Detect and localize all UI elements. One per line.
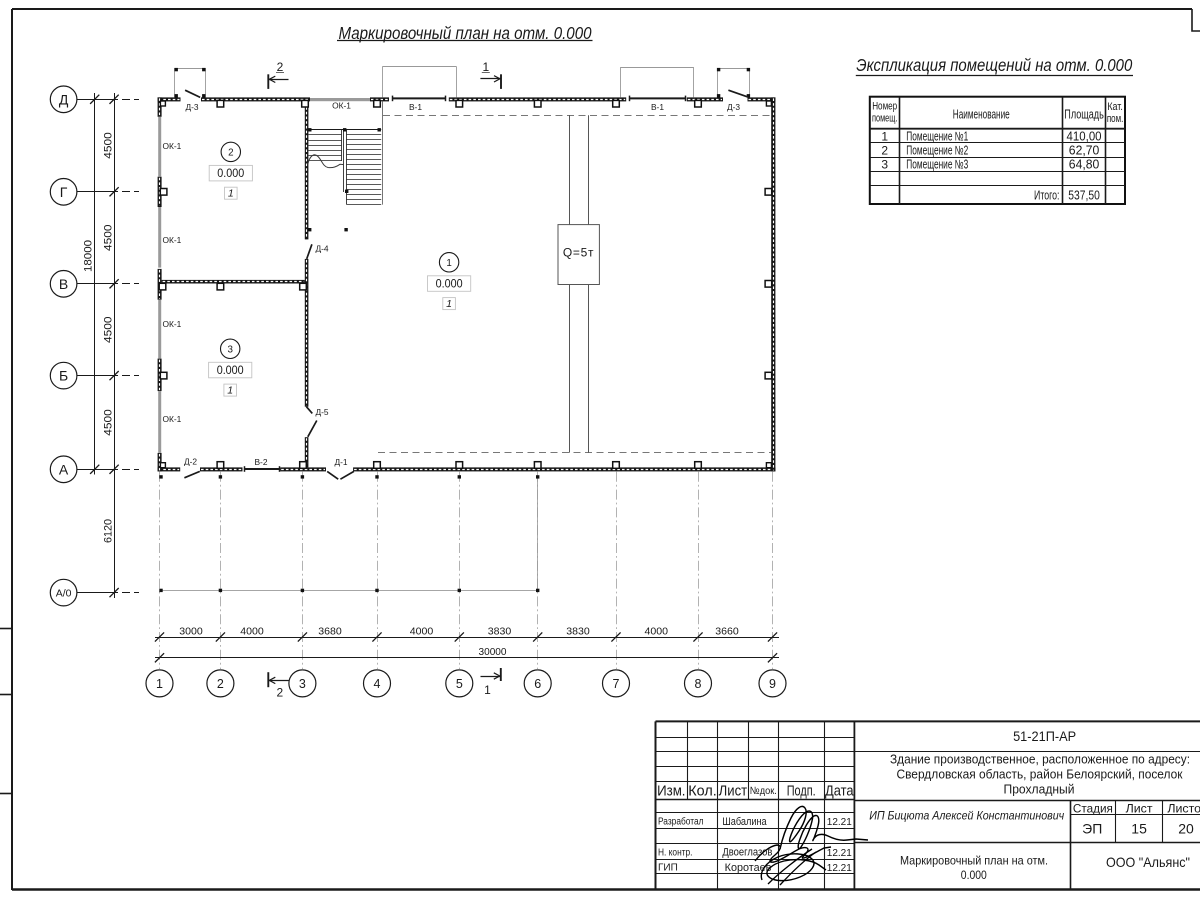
svg-text:Д-1: Д-1: [334, 457, 347, 467]
svg-text:3: 3: [881, 157, 888, 171]
svg-text:64,80: 64,80: [1069, 157, 1100, 171]
svg-text:ОК-1: ОК-1: [163, 141, 182, 151]
svg-text:62,70: 62,70: [1069, 143, 1100, 157]
svg-text:ОК-1: ОК-1: [332, 100, 351, 110]
svg-text:3680: 3680: [318, 626, 342, 637]
svg-text:Д-3: Д-3: [185, 102, 198, 112]
svg-text:1: 1: [482, 60, 489, 74]
svg-text:3660: 3660: [715, 626, 739, 637]
svg-text:А: А: [59, 461, 69, 477]
svg-text:2: 2: [217, 677, 224, 691]
svg-text:12.21: 12.21: [827, 817, 852, 828]
svg-text:Наименование: Наименование: [953, 107, 1010, 121]
svg-text:Б: Б: [59, 368, 68, 384]
svg-text:Q=5т: Q=5т: [563, 245, 594, 259]
svg-text:Д-3: Д-3: [727, 102, 740, 112]
svg-text:Прохладный: Прохладный: [1004, 782, 1075, 797]
svg-text:Маркировочный план на отм.: Маркировочный план на отм.: [900, 855, 1048, 868]
svg-text:Итого:: Итого:: [1034, 187, 1060, 202]
svg-text:Площадь: Площадь: [1064, 107, 1104, 121]
svg-text:12.21: 12.21: [827, 848, 852, 859]
svg-text:В-1: В-1: [409, 102, 422, 112]
svg-text:4: 4: [374, 677, 381, 691]
svg-text:2: 2: [277, 60, 284, 74]
svg-text:Шабалина: Шабалина: [722, 816, 767, 828]
svg-text:1: 1: [881, 129, 888, 143]
svg-text:Разработал: Разработал: [658, 815, 704, 827]
svg-text:2: 2: [228, 148, 233, 159]
svg-text:В: В: [59, 276, 68, 292]
svg-text:Дата: Дата: [825, 783, 854, 799]
svg-text:12.21: 12.21: [827, 863, 852, 874]
svg-text:Свердловская область, район Бе: Свердловская область, район Белоярский, …: [897, 767, 1183, 782]
svg-text:8: 8: [695, 677, 702, 691]
svg-text:1: 1: [227, 385, 233, 397]
svg-text:ИП Бицюта Алексей Константинов: ИП Бицюта Алексей Константинович: [869, 809, 1064, 823]
svg-text:6: 6: [534, 677, 541, 691]
svg-text:1: 1: [484, 683, 491, 697]
svg-text:0.000: 0.000: [436, 277, 463, 291]
svg-text:4000: 4000: [240, 626, 264, 637]
svg-text:Стадия: Стадия: [1073, 801, 1113, 815]
svg-text:Двоеглазов: Двоеглазов: [722, 847, 772, 859]
svg-text:4000: 4000: [410, 626, 434, 637]
svg-text:Здание производственное, распо: Здание производственное, расположенное п…: [890, 752, 1190, 767]
svg-text:4500: 4500: [103, 316, 115, 343]
svg-text:Н. контр.: Н. контр.: [658, 847, 693, 858]
svg-text:1: 1: [446, 298, 452, 310]
svg-text:7: 7: [613, 677, 620, 691]
svg-text:0.000: 0.000: [217, 363, 244, 377]
svg-text:пом.: пом.: [1107, 113, 1124, 125]
svg-text:Лист: Лист: [719, 783, 748, 799]
svg-text:1: 1: [446, 258, 451, 269]
svg-text:1: 1: [156, 677, 163, 691]
svg-text:Помещение №2: Помещение №2: [906, 143, 968, 157]
svg-text:5: 5: [456, 677, 463, 691]
svg-text:ОК-1: ОК-1: [163, 235, 182, 245]
svg-text:51-21П-АР: 51-21П-АР: [1013, 729, 1076, 744]
svg-text:В-1: В-1: [651, 102, 664, 112]
svg-text:1: 1: [228, 188, 234, 200]
svg-text:0.000: 0.000: [217, 166, 244, 180]
svg-text:Номер: Номер: [872, 101, 897, 113]
svg-text:2: 2: [881, 143, 888, 157]
svg-text:4500: 4500: [103, 225, 115, 252]
svg-text:ОК-1: ОК-1: [163, 319, 182, 329]
svg-text:Лист: Лист: [1126, 801, 1153, 815]
svg-text:3000: 3000: [179, 626, 203, 637]
svg-text:537,50: 537,50: [1068, 187, 1100, 202]
svg-text:Д-4: Д-4: [315, 244, 328, 254]
svg-text:№док.: №док.: [750, 785, 777, 797]
svg-text:Изм.: Изм.: [657, 783, 685, 799]
svg-text:4500: 4500: [103, 132, 115, 159]
svg-text:В-2: В-2: [254, 457, 267, 467]
svg-text:Г: Г: [60, 184, 68, 200]
svg-text:410,00: 410,00: [1067, 129, 1102, 143]
svg-text:ГИП: ГИП: [658, 863, 678, 874]
svg-text:6120: 6120: [103, 519, 115, 543]
svg-text:ООО "Альянс": ООО "Альянс": [1106, 855, 1190, 870]
svg-text:Листов: Листов: [1167, 801, 1200, 815]
svg-text:3830: 3830: [488, 626, 512, 637]
svg-text:Помещение №3: Помещение №3: [906, 157, 968, 171]
svg-text:15: 15: [1131, 821, 1147, 837]
svg-text:9: 9: [769, 677, 776, 691]
svg-text:2: 2: [276, 686, 283, 700]
svg-text:18000: 18000: [83, 240, 95, 272]
svg-text:Д-5: Д-5: [315, 407, 328, 417]
svg-text:20: 20: [1178, 821, 1194, 837]
svg-text:4000: 4000: [645, 626, 669, 637]
svg-text:Экспликация помещений на отм.: Экспликация помещений на отм. 0.000: [856, 55, 1132, 75]
svg-text:0.000: 0.000: [961, 869, 987, 882]
svg-text:Помещение №1: Помещение №1: [906, 129, 968, 143]
svg-text:Кол.: Кол.: [688, 783, 717, 799]
svg-text:помещ.: помещ.: [872, 113, 898, 125]
svg-text:3: 3: [299, 677, 306, 691]
svg-text:ЭП: ЭП: [1082, 821, 1102, 837]
svg-text:3830: 3830: [566, 626, 590, 637]
svg-text:Маркировочный план на отм. 0.0: Маркировочный план на отм. 0.000: [339, 23, 592, 43]
svg-text:30000: 30000: [479, 647, 507, 658]
svg-text:Кат.: Кат.: [1107, 101, 1123, 113]
svg-text:3: 3: [227, 344, 233, 355]
svg-text:Д-2: Д-2: [184, 457, 197, 467]
svg-text:Подп.: Подп.: [787, 783, 816, 799]
svg-text:Д: Д: [59, 91, 69, 107]
svg-text:А/0: А/0: [56, 587, 72, 599]
svg-text:4500: 4500: [103, 409, 115, 436]
svg-text:ОК-1: ОК-1: [163, 414, 182, 424]
